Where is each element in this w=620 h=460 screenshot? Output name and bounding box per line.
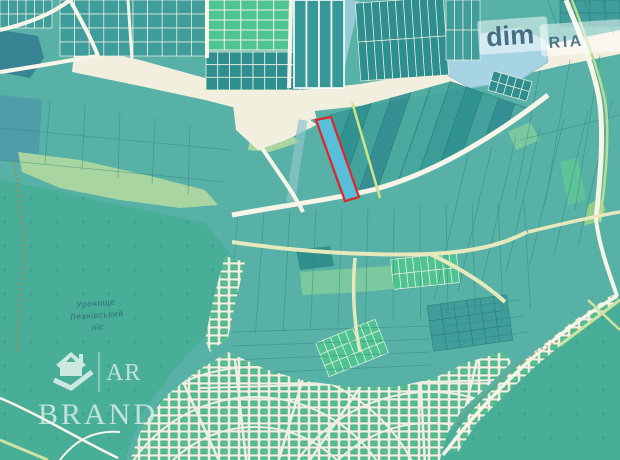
forest-label-line3: ліс [91,322,105,333]
watermark-text-ria: RIA [548,33,584,52]
map-canvas[interactable]: Урочище Лезнівський ліс dim RIA AR BRAND [0,0,620,460]
logo-initials: AR [106,360,141,386]
watermark-text-dim: dim [485,19,535,52]
logo-name: BRAND [38,398,158,431]
map-viewport[interactable]: Урочище Лезнівський ліс dim RIA AR BRAND [0,0,620,460]
